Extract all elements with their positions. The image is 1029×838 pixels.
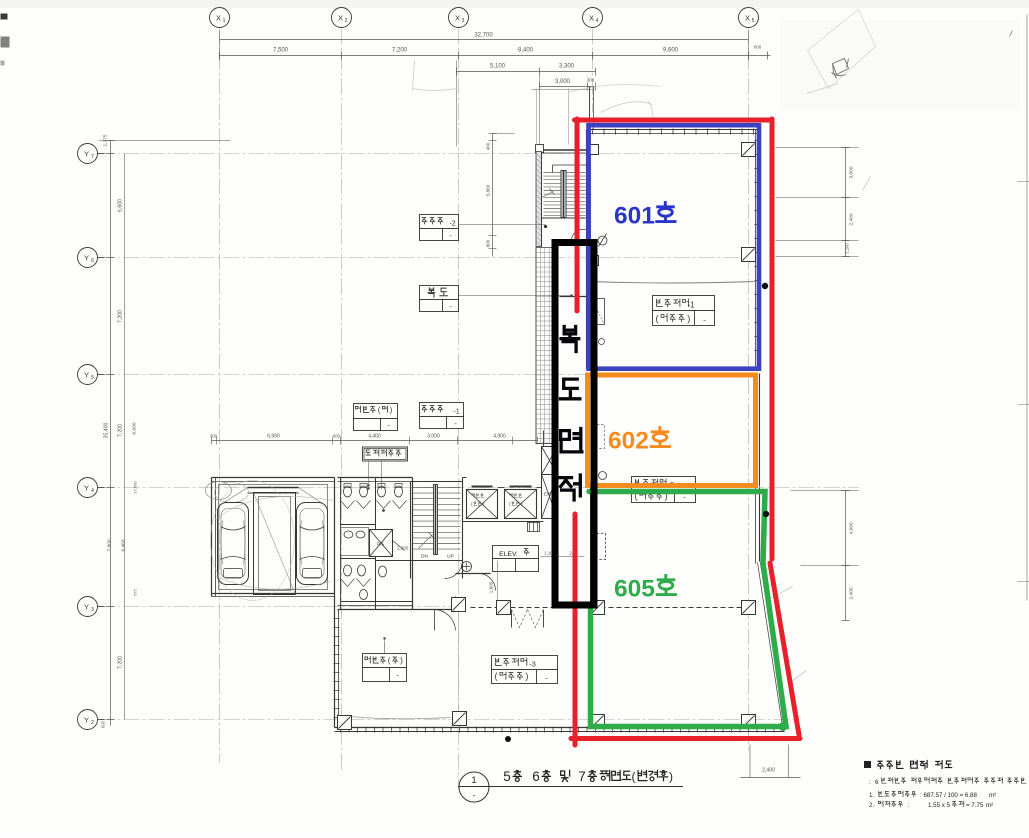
svg-text:400: 400 [486,142,491,150]
svg-text:): ) [669,770,673,784]
svg-text:Y: Y [84,254,89,263]
svg-text:6: 6 [532,769,540,784]
svg-text:1,600: 1,600 [489,581,494,593]
svg-text:300: 300 [587,78,595,83]
svg-text:600: 600 [333,434,341,439]
svg-text:6: 6 [875,779,879,786]
svg-text:5: 5 [752,18,755,24]
svg-text:X: X [216,14,221,23]
svg-text:DN: DN [421,554,428,559]
svg-text:X: X [745,14,750,23]
svg-text:7,200: 7,200 [118,656,124,669]
svg-text:9,600: 9,600 [663,48,679,54]
svg-text:7,800: 7,800 [107,539,113,551]
svg-text:4,900: 4,900 [849,522,855,534]
svg-text:7,500: 7,500 [273,48,289,54]
svg-text:X: X [589,14,594,23]
svg-text:5: 5 [91,375,94,381]
svg-text:300: 300 [210,434,218,439]
svg-text:): ) [400,655,403,665]
svg-text:1.: 1. [869,792,874,799]
svg-text:2,400: 2,400 [849,587,855,599]
svg-text:7,200: 7,200 [118,310,124,323]
svg-text:m²: m² [986,802,993,809]
svg-text:= 7.75: = 7.75 [966,802,984,809]
svg-text:35,400: 35,400 [104,422,110,438]
svg-text:7: 7 [91,154,94,160]
svg-text:2,400: 2,400 [849,213,855,225]
svg-text:4: 4 [91,488,94,494]
svg-text:1: 1 [223,18,226,24]
svg-text:-1: -1 [453,409,459,416]
svg-text:601: 601 [614,203,655,230]
svg-text:7,200: 7,200 [118,424,124,437]
svg-text:3,300: 3,300 [559,64,575,70]
svg-text:800: 800 [486,239,491,247]
svg-text:7,200: 7,200 [392,48,408,54]
svg-text:(: ( [378,405,381,414]
svg-text:X: X [338,14,343,23]
svg-text:1: 1 [471,775,476,786]
svg-text:-2: -2 [449,221,455,228]
svg-text:-1: -1 [687,301,695,310]
svg-text:3: 3 [462,18,465,24]
svg-text:Y: Y [84,150,89,159]
svg-text:: 687.57 / 100 = 6.88: : 687.57 / 100 = 6.88 [920,792,977,799]
svg-text:5: 5 [503,769,511,784]
svg-text:UP: UP [447,554,453,559]
svg-text:(: ( [495,671,498,681]
svg-text:5,100: 5,100 [490,64,506,70]
svg-text:Y: Y [84,371,89,380]
svg-text:1,200: 1,200 [845,243,850,254]
svg-text:4,400: 4,400 [368,434,381,440]
svg-text:E/S: E/S [544,492,551,497]
svg-text:6: 6 [91,258,94,264]
svg-text:): ) [687,312,690,323]
svg-text:5,860: 5,860 [486,184,491,196]
svg-text:): ) [525,671,528,681]
svg-text:2,400: 2,400 [762,768,775,774]
svg-text:600: 600 [101,720,106,728]
svg-text:605: 605 [614,576,655,603]
svg-text:(: ( [632,770,636,784]
svg-text:602: 602 [608,428,649,455]
svg-text:3,000: 3,000 [849,166,855,178]
svg-text:17,600: 17,600 [133,481,138,494]
svg-text:2.: 2. [869,802,874,809]
svg-text:600: 600 [754,45,762,50]
svg-text:-: - [473,791,476,800]
svg-text::: : [869,779,871,786]
svg-text:4: 4 [596,18,599,24]
svg-text:7: 7 [578,769,586,784]
svg-text:X: X [455,14,460,23]
svg-text:1,200: 1,200 [397,546,409,551]
svg-text:P/S: P/S [377,542,384,547]
svg-text:1.55 x 5: 1.55 x 5 [928,802,951,809]
svg-text::: : [908,802,910,809]
svg-text:Y: Y [84,484,89,493]
svg-text:6,600: 6,600 [132,422,138,434]
svg-text:6,990: 6,990 [267,434,280,440]
svg-text:2: 2 [91,720,94,726]
svg-text:ELEV.: ELEV. [499,551,518,558]
svg-text:-3: -3 [529,660,536,669]
svg-text:3,000: 3,000 [427,434,440,440]
svg-text:32,700: 32,700 [474,33,493,39]
svg-text:2: 2 [345,18,348,24]
svg-text:-: - [703,316,706,325]
svg-text:1,375: 1,375 [103,134,109,146]
svg-text:m²: m² [989,792,996,799]
svg-text:8,400: 8,400 [518,48,534,54]
svg-text:6,460: 6,460 [121,539,127,551]
svg-text:(: ( [388,655,391,665]
svg-text:Y: Y [84,716,89,725]
svg-text:): ) [390,405,393,414]
svg-text:4,900: 4,900 [493,434,506,440]
svg-text:6,600: 6,600 [118,199,124,212]
svg-text:3: 3 [91,607,94,613]
svg-text:Y: Y [84,603,89,612]
svg-text:575: 575 [133,588,138,595]
svg-text:3,000: 3,000 [555,79,571,85]
